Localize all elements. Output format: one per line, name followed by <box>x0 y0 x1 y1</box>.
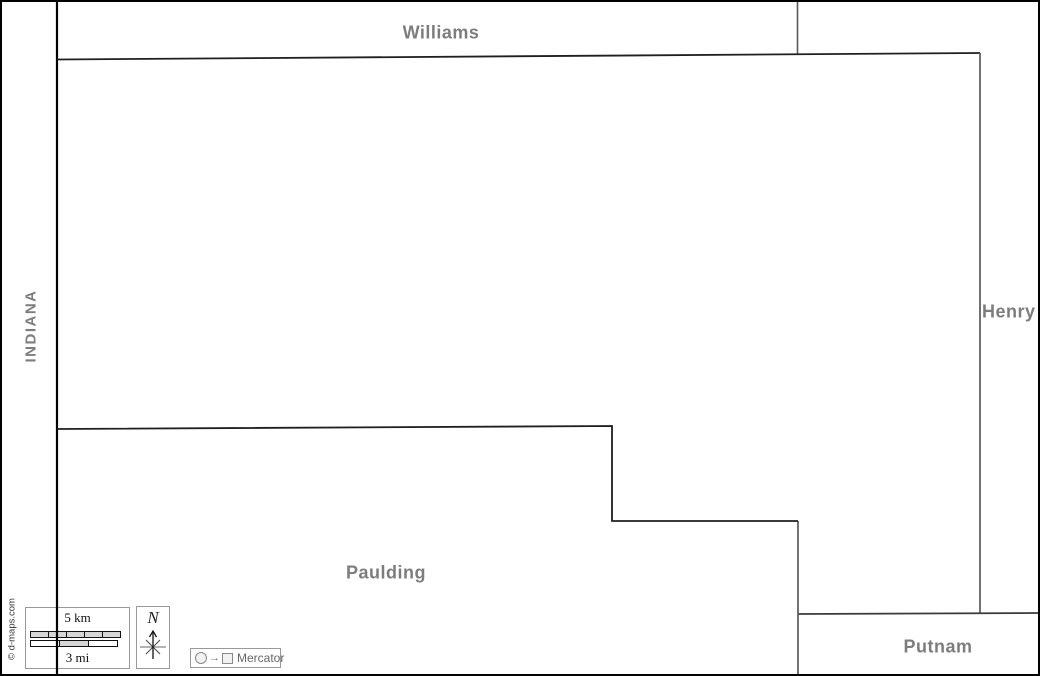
county-south-boundary-line <box>57 426 798 521</box>
projection-name: Mercator <box>237 651 284 665</box>
county-north-boundary-line <box>57 53 980 60</box>
compass: N <box>136 606 170 669</box>
scale-bar-km <box>30 631 121 638</box>
henry-putnam-boundary-line <box>798 613 1040 614</box>
label-putnam: Putnam <box>903 637 972 658</box>
scale-segment <box>102 631 121 638</box>
scale-segment <box>88 640 118 647</box>
map-boundary-lines <box>2 2 1040 676</box>
label-paulding: Paulding <box>346 563 426 584</box>
projection-legend: → Mercator <box>190 648 281 668</box>
scale-bar: 5 km 3 mi <box>25 607 130 669</box>
scale-segment <box>59 640 89 647</box>
scale-segment <box>66 631 85 638</box>
scale-segment <box>30 631 49 638</box>
label-henry: Henry <box>982 302 1036 323</box>
compass-north-label: N <box>137 608 169 628</box>
scale-bar-mi <box>30 640 118 647</box>
scale-km-label: 5 km <box>26 610 129 626</box>
label-williams: Williams <box>403 23 480 44</box>
projection-plane-icon <box>222 653 233 664</box>
label-indiana: INDIANA <box>23 290 40 363</box>
scale-segment <box>30 640 60 647</box>
county-outline-map: Williams Henry Paulding Putnam INDIANA ©… <box>0 0 1040 676</box>
projection-arrow-icon: → <box>209 653 220 664</box>
compass-star-icon <box>139 628 167 662</box>
scale-mi-label: 3 mi <box>26 650 129 666</box>
projection-sphere-icon <box>195 652 207 664</box>
credit-text: © d-maps.com <box>7 598 18 660</box>
scale-segment <box>84 631 103 638</box>
scale-segment <box>48 631 67 638</box>
